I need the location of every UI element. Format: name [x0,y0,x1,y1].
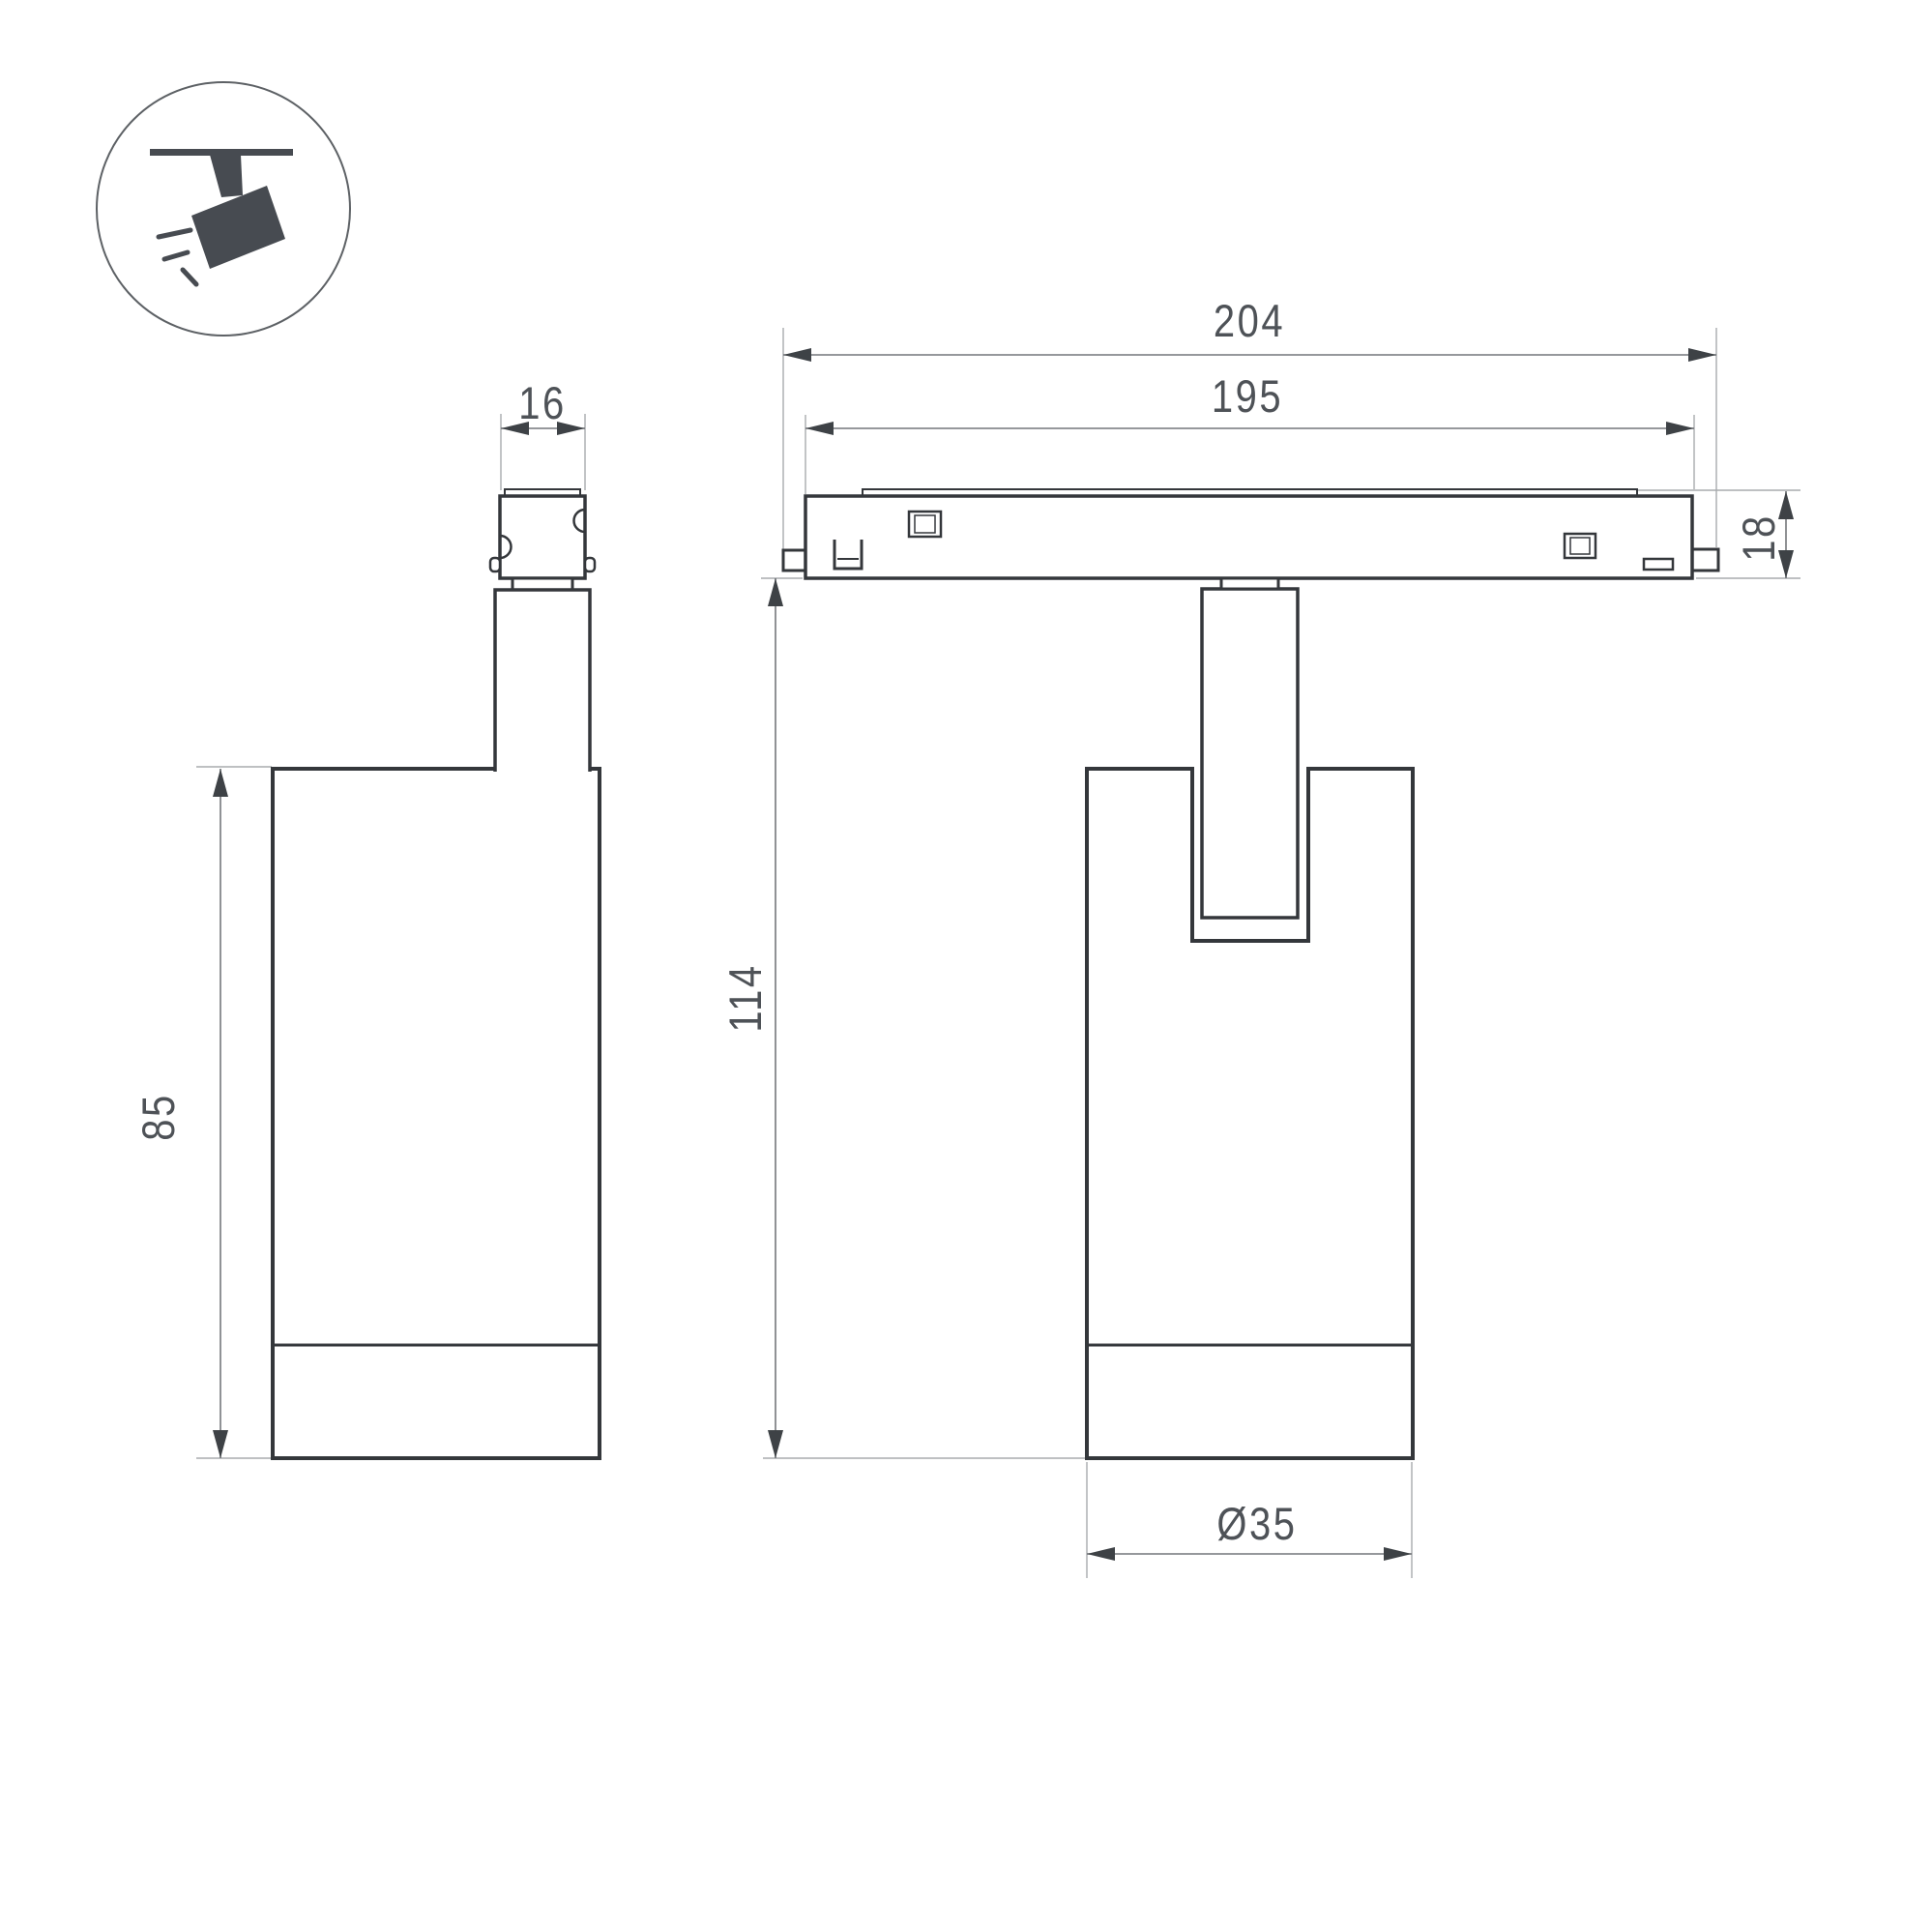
technical-drawing-canvas: 16 85 204 [0,0,1932,1932]
drawing-svg: 16 85 204 [0,0,1932,1932]
dimension-body-diameter: Ø35 [1087,1462,1412,1578]
front-stem [1202,589,1298,918]
dim-label-body-diameter: Ø35 [1216,1500,1297,1550]
side-track-adapter [500,496,585,578]
product-icon [97,82,350,336]
dimension-total-height: 114 [721,578,1085,1458]
dimension-track-inner-length: 195 [805,372,1694,494]
dimension-body-height: 85 [134,767,272,1458]
front-track-end-tab-right [1692,549,1718,571]
front-stem-mount-plate [1221,578,1278,589]
dim-label-adapter-width: 16 [518,379,567,429]
side-adapter-tab-right [585,558,595,571]
front-track-end-tab-left [783,550,805,571]
side-view: 16 85 [134,379,600,1458]
dimension-adapter-width: 16 [501,379,585,490]
side-neck [512,578,572,590]
side-body [273,769,600,1458]
front-view: 204 195 18 114 [721,297,1800,1578]
dim-label-total-height: 114 [721,963,772,1032]
dim-label-track-inner-length: 195 [1212,372,1283,423]
side-stem [495,590,590,772]
icon-ceiling-track-bar [150,149,293,156]
dim-label-track-length: 204 [1214,297,1285,347]
side-adapter-tab-left [490,558,500,571]
dim-label-body-height: 85 [134,1093,185,1141]
dim-label-track-height: 18 [1735,513,1785,562]
